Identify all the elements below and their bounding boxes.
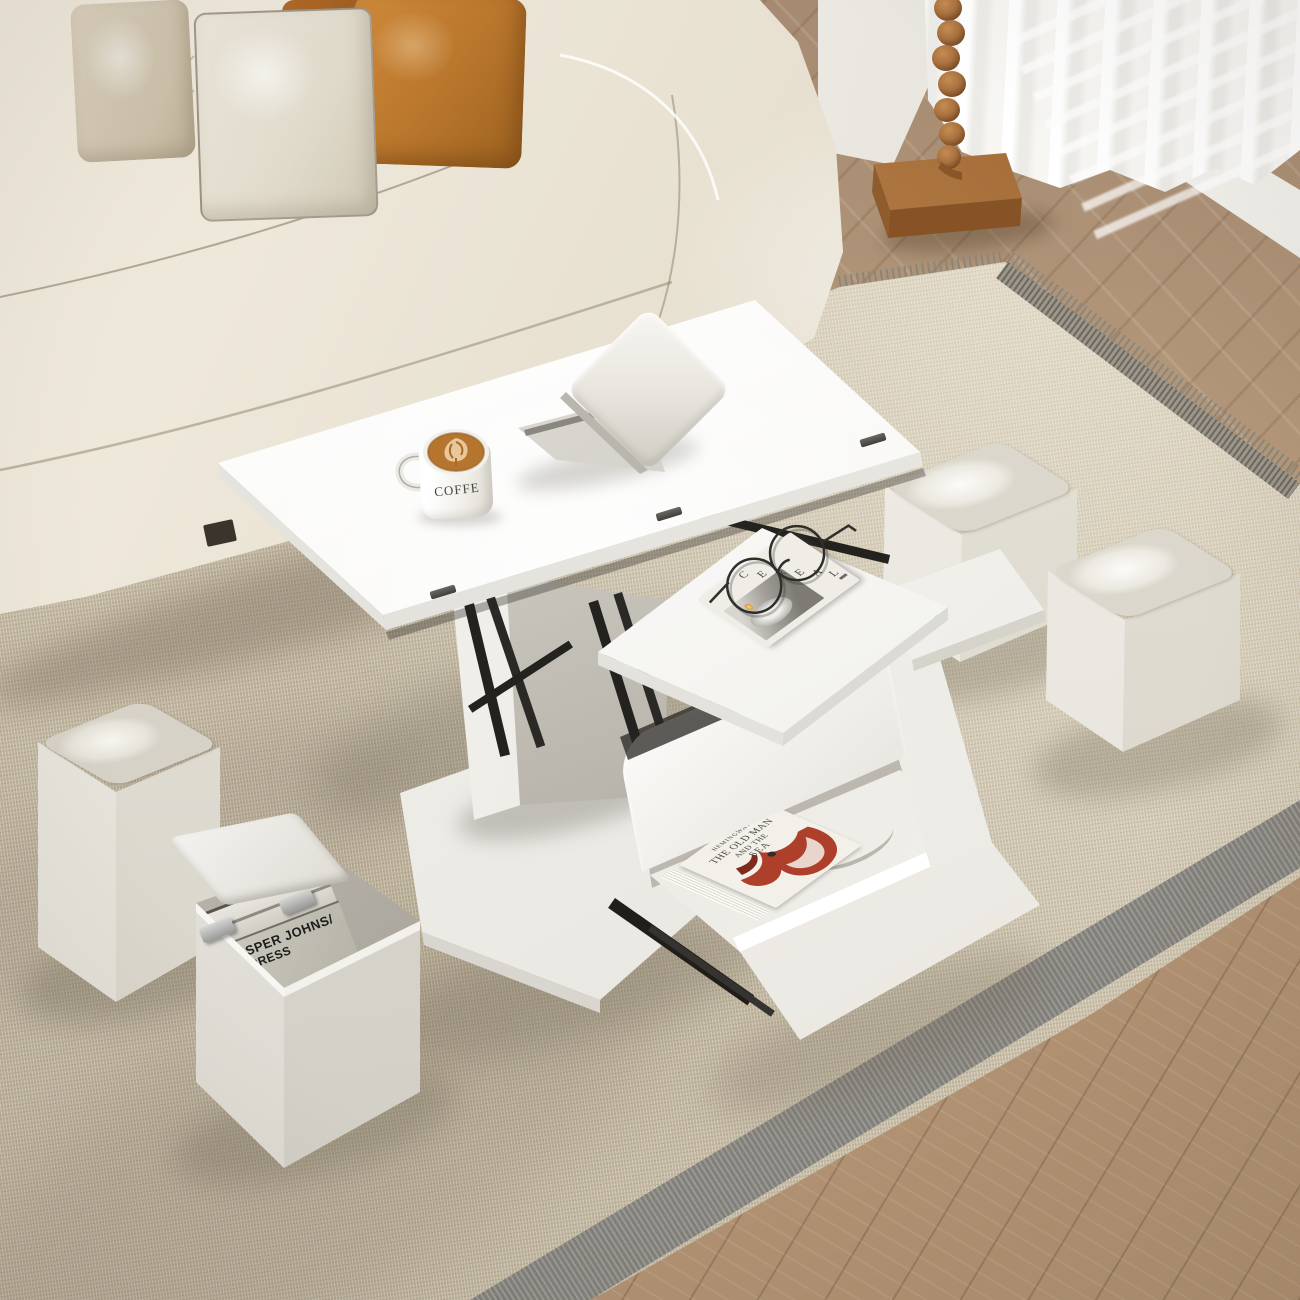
- vignette: [0, 0, 1300, 1300]
- living-room-scene: JASPER JOHNS/ IN PRESS HEMINGWAY: [0, 0, 1300, 1300]
